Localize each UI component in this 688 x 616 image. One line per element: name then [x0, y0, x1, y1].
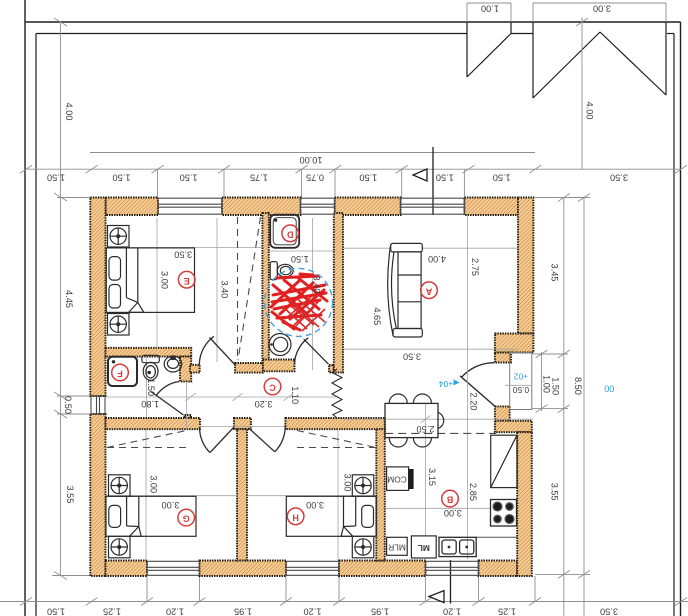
svg-text:3.00: 3.00 — [342, 474, 352, 492]
svg-text:1.50: 1.50 — [493, 172, 511, 182]
svg-text:8.50: 8.50 — [573, 377, 583, 395]
svg-text:1.95: 1.95 — [371, 607, 389, 616]
svg-text:1.50: 1.50 — [359, 172, 377, 182]
svg-text:3.00: 3.00 — [444, 508, 462, 518]
svg-text:3.00: 3.00 — [593, 4, 611, 14]
svg-text:3.40: 3.40 — [311, 276, 321, 294]
svg-text:1.25: 1.25 — [103, 607, 121, 616]
svg-text:2.75: 2.75 — [470, 258, 480, 276]
svg-text:1.20: 1.20 — [304, 607, 322, 616]
svg-text:2.85: 2.85 — [468, 483, 478, 501]
svg-text:A: A — [425, 286, 432, 296]
svg-text:3.00: 3.00 — [162, 500, 180, 510]
svg-text:1.50: 1.50 — [146, 378, 156, 396]
svg-text:1.20: 1.20 — [166, 607, 184, 616]
svg-text:3.15: 3.15 — [427, 468, 437, 486]
svg-text:3.50: 3.50 — [600, 607, 618, 616]
svg-text:4.65: 4.65 — [372, 307, 382, 325]
svg-text:+02: +02 — [514, 371, 529, 381]
svg-text:1.50: 1.50 — [47, 607, 65, 616]
svg-text:E: E — [184, 276, 190, 286]
svg-text:3.50: 3.50 — [610, 172, 628, 182]
svg-text:0.50: 0.50 — [63, 396, 73, 414]
svg-text:4.00: 4.00 — [428, 254, 446, 264]
svg-text:1.25: 1.25 — [498, 607, 516, 616]
svg-text:1.80: 1.80 — [141, 399, 159, 409]
svg-text:3.50: 3.50 — [174, 249, 192, 259]
svg-text:1.50: 1.50 — [436, 172, 454, 182]
svg-text:2.20: 2.20 — [469, 393, 479, 411]
svg-text:3.40: 3.40 — [219, 280, 229, 298]
svg-text:MLR: MLR — [388, 542, 406, 552]
svg-text:1.95: 1.95 — [234, 607, 252, 616]
svg-text:3.55: 3.55 — [550, 483, 560, 501]
svg-text:1.50: 1.50 — [113, 172, 131, 182]
svg-text:3.45: 3.45 — [550, 264, 560, 282]
svg-text:2.50: 2.50 — [417, 424, 435, 434]
svg-text:COM: COM — [387, 474, 407, 484]
svg-text:1.00: 1.00 — [481, 4, 499, 14]
svg-text:D: D — [286, 229, 293, 239]
svg-text:4.00: 4.00 — [64, 103, 74, 121]
svg-text:3.20: 3.20 — [255, 399, 273, 409]
svg-text:3.00: 3.00 — [148, 475, 158, 493]
svg-text:B: B — [446, 495, 453, 505]
svg-text:+04: +04 — [439, 379, 454, 389]
svg-text:3.00: 3.00 — [306, 500, 324, 510]
svg-text:4.00: 4.00 — [585, 102, 595, 120]
svg-text:3.50: 3.50 — [403, 352, 421, 362]
svg-text:4.45: 4.45 — [64, 290, 74, 308]
svg-text:00: 00 — [604, 383, 614, 393]
svg-text:3.55: 3.55 — [65, 485, 75, 503]
svg-text:1.10: 1.10 — [290, 386, 300, 404]
svg-text:1.50: 1.50 — [180, 172, 198, 182]
svg-text:G: G — [183, 514, 190, 524]
svg-text:F: F — [117, 369, 123, 379]
svg-text:1.50: 1.50 — [291, 254, 309, 264]
svg-text:1.50: 1.50 — [47, 172, 65, 182]
svg-text:C: C — [269, 383, 276, 393]
svg-text:10.00: 10.00 — [300, 155, 323, 165]
svg-text:ML: ML — [418, 543, 430, 553]
svg-text:0.50: 0.50 — [513, 385, 530, 395]
svg-text:1.75: 1.75 — [250, 172, 268, 182]
svg-text:3.00: 3.00 — [159, 271, 169, 289]
svg-text:0.75: 0.75 — [306, 172, 324, 182]
svg-text:1.00: 1.00 — [541, 375, 551, 393]
svg-text:H: H — [292, 512, 299, 522]
svg-text:1.20: 1.20 — [443, 607, 461, 616]
